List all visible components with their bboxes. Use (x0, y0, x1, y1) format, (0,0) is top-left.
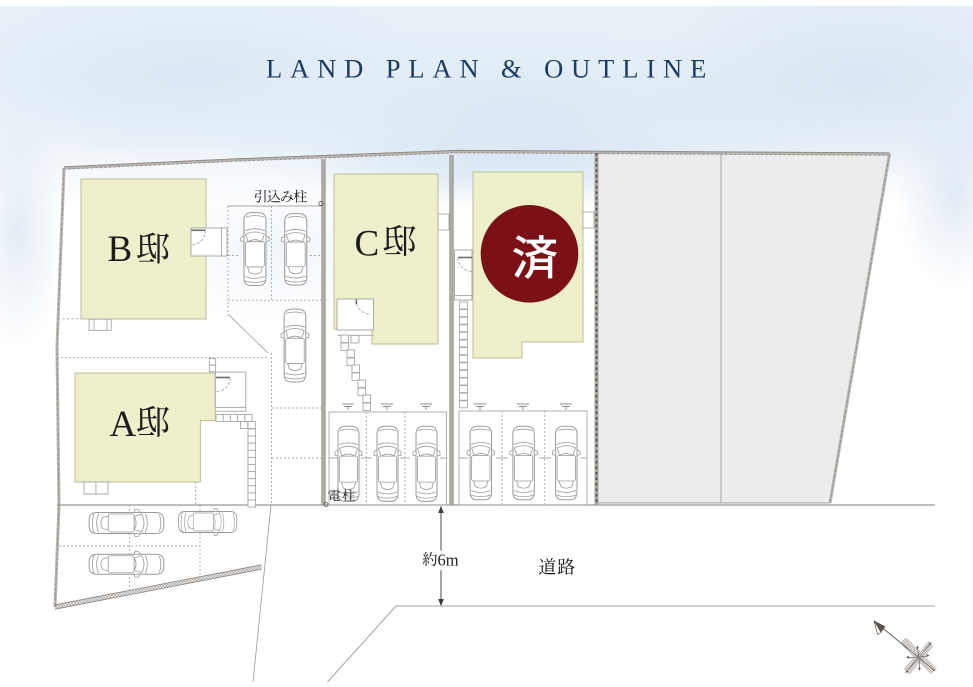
svg-text:LAND PLAN & OUTLINE: LAND PLAN & OUTLINE (266, 54, 714, 84)
svg-text:A: A (110, 404, 137, 445)
svg-text:B: B (108, 229, 133, 270)
svg-text:6m: 6m (438, 550, 459, 569)
svg-text:C: C (355, 224, 380, 265)
